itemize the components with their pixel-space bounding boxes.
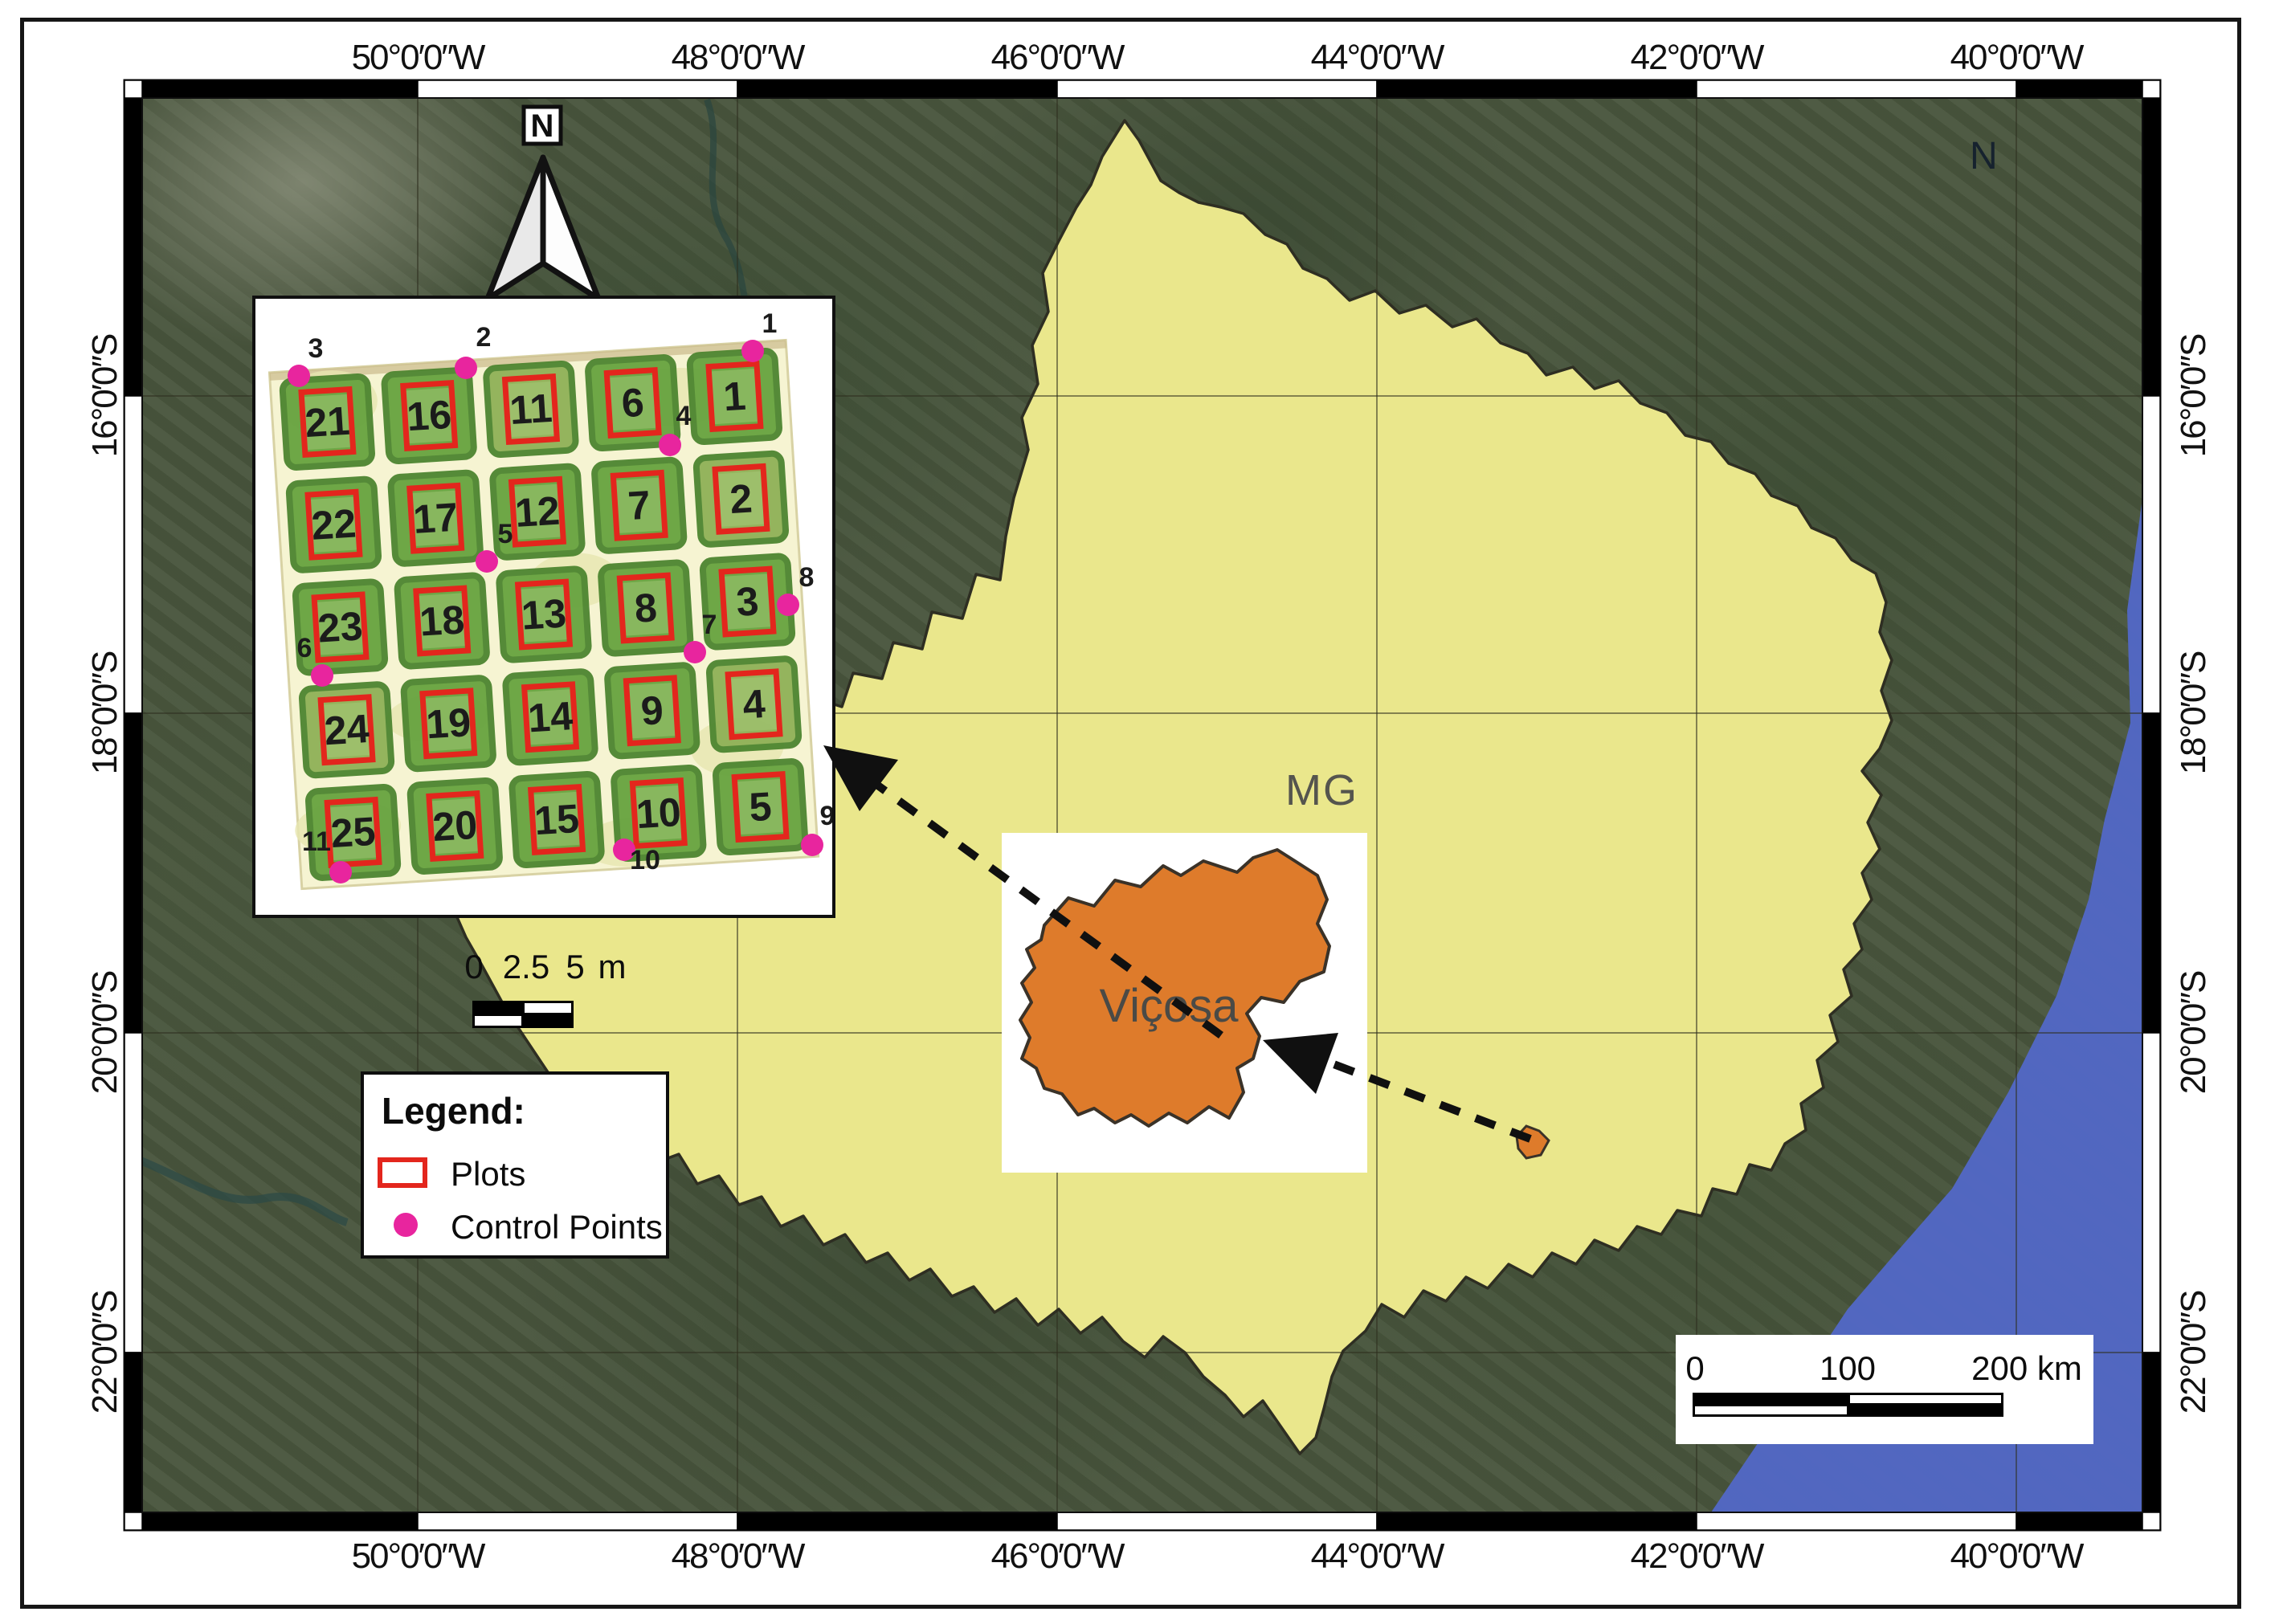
field-soil-line xyxy=(269,340,786,380)
plot-vegetation xyxy=(301,683,392,775)
plot-cell: 15 xyxy=(512,773,602,865)
plot-cell: 12 xyxy=(492,466,583,557)
control-point-dot xyxy=(329,861,352,883)
plot-outline-rect xyxy=(301,390,353,455)
plot-outline-rect xyxy=(512,479,564,545)
mosaic-blotch xyxy=(617,365,733,430)
plot-number: 2 xyxy=(729,475,754,522)
control-point-number: 7 xyxy=(702,610,717,640)
plot-number: 3 xyxy=(735,578,760,625)
vicosa-municipality-polygon xyxy=(1020,850,1329,1126)
plot-number: 18 xyxy=(419,597,466,644)
plot-vegetation xyxy=(505,671,596,763)
plot-cell: 6 xyxy=(587,357,678,448)
plot-vegetation-center xyxy=(300,394,353,451)
plot-number: 8 xyxy=(633,585,658,631)
plot-number: 23 xyxy=(317,603,364,651)
plot-vegetation xyxy=(600,562,691,654)
plot-cell: 16 xyxy=(384,369,475,461)
graticule-label-right: 20°0′0″S xyxy=(2174,972,2214,1095)
plot-number: 1 xyxy=(722,373,747,420)
inset-scalebar-tick-0: 0 xyxy=(464,948,483,986)
control-point: 8 xyxy=(777,562,814,616)
vicosa-inset-box: Viçosa xyxy=(1002,833,1367,1173)
plot-outline-rect xyxy=(308,492,360,557)
plot-cell: 17 xyxy=(390,472,481,564)
control-point-dot xyxy=(777,594,799,616)
plot-outline-rect xyxy=(721,569,774,635)
plot-outline-rect xyxy=(429,794,481,859)
plot-cell: 19 xyxy=(403,678,494,769)
graticule-label-right: 16°0′0″S xyxy=(2174,335,2214,458)
legend-item-plots: Plots xyxy=(451,1155,525,1194)
plot-number: 12 xyxy=(513,488,561,536)
plot-vegetation-center xyxy=(511,484,564,540)
map-figure: MG N N 211611612217127223181383241914942… xyxy=(0,0,2279,1624)
plot-vegetation-center xyxy=(734,779,787,835)
inset-scalebar-tick-2-5: 2.5 xyxy=(503,948,549,986)
graticule-label-left: 18°0′0″S xyxy=(85,652,125,775)
main-scalebar-tick-0: 0 xyxy=(1685,1349,1704,1388)
control-point: 11 xyxy=(302,826,352,883)
control-point-number: 2 xyxy=(476,322,492,353)
graticule-label-left: 16°0′0″S xyxy=(85,335,125,458)
plot-vegetation-center xyxy=(321,702,374,758)
plot-cell: 3 xyxy=(702,556,793,647)
plot-vegetation xyxy=(282,376,373,467)
plot-outline-rect xyxy=(613,472,665,538)
plot-number: 21 xyxy=(304,398,351,446)
plot-vegetation-center xyxy=(728,676,781,732)
plot-vegetation xyxy=(499,569,590,660)
plot-vegetation-center xyxy=(307,496,360,553)
plot-vegetation xyxy=(689,350,780,442)
control-point: 3 xyxy=(288,333,323,387)
plot-cell: 9 xyxy=(607,665,698,757)
plot-number: 22 xyxy=(310,501,357,549)
mosaic-blotch xyxy=(527,550,620,610)
plot-cell: 21 xyxy=(282,376,373,467)
graticule-label-bottom: 42°0′0″W xyxy=(1631,1536,1763,1577)
plot-outline-rect xyxy=(728,671,780,737)
plot-vegetation xyxy=(486,363,577,455)
plot-vegetation xyxy=(288,479,379,570)
plot-vegetation xyxy=(709,659,799,750)
plot-vegetation xyxy=(702,556,793,647)
plot-number: 10 xyxy=(635,790,682,837)
control-point-number: 5 xyxy=(498,519,513,549)
plot-vegetation-center xyxy=(517,586,570,643)
plot-cell: 7 xyxy=(594,459,684,551)
plot-cell: 23 xyxy=(295,581,386,673)
control-point: 9 xyxy=(801,801,832,856)
plot-cell: 2 xyxy=(696,453,786,545)
graticule-label-top: 50°0′0″W xyxy=(352,38,484,78)
graticule-label-bottom: 40°0′0″W xyxy=(1950,1536,2083,1577)
plot-cell: 1 xyxy=(689,350,780,442)
plot-cell: 24 xyxy=(301,683,392,775)
plot-number: 6 xyxy=(620,380,645,426)
graticule-label-bottom: 50°0′0″W xyxy=(352,1536,484,1577)
mosaic-blotch xyxy=(280,368,380,438)
plot-vegetation-center xyxy=(524,689,577,745)
plot-vegetation-center xyxy=(721,573,774,630)
plot-vegetation xyxy=(308,786,398,878)
plot-vegetation-center xyxy=(613,477,666,533)
plot-vegetation xyxy=(492,466,583,557)
control-point: 2 xyxy=(455,322,491,379)
inset-scalebar-outline xyxy=(472,1001,574,1028)
control-point: 5 xyxy=(476,519,513,573)
plot-outline-rect xyxy=(525,684,577,750)
plot-number: 25 xyxy=(329,809,377,856)
control-point-number: 10 xyxy=(630,845,660,875)
plot-outline-rect xyxy=(715,466,767,532)
graticule-label-right: 18°0′0″S xyxy=(2174,652,2214,775)
control-point-number: 8 xyxy=(799,562,815,593)
plot-cell: 5 xyxy=(715,761,806,852)
control-point-dot xyxy=(455,357,477,379)
plot-cell: 8 xyxy=(600,562,691,654)
main-scalebar: 0 100 200 km xyxy=(1676,1335,2093,1444)
plot-outline-rect xyxy=(709,364,761,430)
plot-outline-rect xyxy=(626,678,678,744)
graticule-label-bottom: 48°0′0″W xyxy=(672,1536,804,1577)
control-point-number: 4 xyxy=(676,401,692,431)
control-point-dot xyxy=(659,434,681,456)
orthomosaic-field: 2116116122171272231813832419149425201510… xyxy=(266,340,818,888)
control-point-swatch-icon xyxy=(394,1213,418,1237)
plot-number: 4 xyxy=(741,681,766,728)
plot-cell: 22 xyxy=(288,479,379,570)
plot-cell: 20 xyxy=(410,780,500,871)
plot-outline-rect xyxy=(518,581,570,647)
plot-vegetation-center xyxy=(409,490,462,546)
control-point-dot xyxy=(288,365,310,387)
plot-vegetation-center xyxy=(530,792,583,848)
plot-number: 15 xyxy=(533,796,581,843)
plot-number: 17 xyxy=(412,495,459,542)
plot-outline-rect xyxy=(403,383,455,449)
plot-outline-rect xyxy=(423,691,475,757)
orthomosaic-background xyxy=(269,340,818,888)
plot-number: 20 xyxy=(431,802,479,850)
plot-number: 7 xyxy=(627,482,651,528)
control-point-number: 9 xyxy=(820,801,832,831)
control-point-dot xyxy=(476,550,498,573)
plot-outline-rect xyxy=(410,485,462,551)
control-point: 7 xyxy=(684,610,717,663)
plot-vegetation-center xyxy=(504,382,557,438)
plot-vegetation-center xyxy=(619,580,672,636)
mosaic-blotch xyxy=(581,815,680,869)
plot-vegetation xyxy=(410,780,500,871)
plot-number: 14 xyxy=(527,693,574,741)
plot-vegetation-center xyxy=(415,593,468,649)
graticule-label-top: 40°0′0″W xyxy=(1950,38,2083,78)
plot-outline-rect xyxy=(531,787,583,853)
plot-vegetation xyxy=(614,767,705,859)
graticule-label-top: 44°0′0″W xyxy=(1311,38,1444,78)
vicosa-label: Viçosa xyxy=(1099,980,1239,1032)
graticule-label-bottom: 44°0′0″W xyxy=(1311,1536,1444,1577)
plot-cell: 4 xyxy=(709,659,799,750)
control-point-dot xyxy=(684,641,706,663)
plot-vegetation-center xyxy=(327,805,380,861)
plot-vegetation xyxy=(696,453,786,545)
mosaic-blotch xyxy=(689,716,786,779)
mosaic-blotch xyxy=(385,691,491,745)
plot-cell: 13 xyxy=(499,569,590,660)
plot-vegetation-center xyxy=(402,388,455,444)
plot-vegetation-center xyxy=(313,599,366,655)
plot-outline-rect xyxy=(327,800,379,866)
control-point-number: 11 xyxy=(302,826,331,857)
plot-vegetation xyxy=(384,369,475,461)
graticule-label-bottom: 46°0′0″W xyxy=(991,1536,1124,1577)
plot-vegetation xyxy=(512,773,602,865)
graticule-label-right: 22°0′0″S xyxy=(2174,1291,2214,1414)
plot-number: 9 xyxy=(639,688,664,734)
plot-number: 5 xyxy=(748,784,773,830)
main-scalebar-outline xyxy=(1693,1393,2003,1417)
control-point: 1 xyxy=(741,308,777,362)
plot-cell: 25 xyxy=(308,786,398,878)
plot-swatch-icon xyxy=(378,1157,427,1188)
plots-inset-canvas: 2116116122171272231813832419149425201510… xyxy=(255,299,832,915)
graticule-label-left: 20°0′0″S xyxy=(85,972,125,1095)
plot-vegetation-center xyxy=(632,785,685,842)
plot-outline-rect xyxy=(632,781,684,847)
plot-outline-rect xyxy=(734,774,786,840)
plot-vegetation xyxy=(403,678,494,769)
plot-outline-rect xyxy=(416,588,468,654)
control-point-dot xyxy=(801,834,823,856)
plot-vegetation-center xyxy=(714,471,767,527)
graticule-label-top: 48°0′0″W xyxy=(672,38,804,78)
plot-cell: 10 xyxy=(614,767,705,859)
control-point-number: 6 xyxy=(297,633,312,663)
control-point: 4 xyxy=(659,401,692,456)
legend-item-control-points: Control Points xyxy=(451,1208,663,1247)
plot-vegetation-center xyxy=(626,683,679,739)
plot-outline-rect xyxy=(619,575,672,641)
plot-vegetation xyxy=(390,472,481,564)
control-point-dot xyxy=(613,839,635,861)
inset-scalebar-unit: m xyxy=(598,948,627,986)
control-point-number: 1 xyxy=(762,308,778,339)
plot-number: 24 xyxy=(323,706,370,753)
legend: Legend: Plots Control Points xyxy=(361,1071,669,1259)
plot-outline-rect xyxy=(314,594,366,660)
control-point-number: 3 xyxy=(308,333,324,364)
plot-vegetation xyxy=(715,761,806,852)
vicosa-inset-canvas: Viçosa xyxy=(1002,833,1367,1173)
plot-vegetation-center xyxy=(422,696,475,752)
plot-cell: 11 xyxy=(486,363,577,455)
plot-cell: 14 xyxy=(505,671,596,763)
plot-vegetation-center xyxy=(607,375,660,431)
plot-number: 13 xyxy=(520,590,567,638)
control-point-dot xyxy=(741,340,764,362)
main-scalebar-tick-100: 100 xyxy=(1820,1349,1876,1388)
control-point-dot xyxy=(311,664,333,687)
graticule-label-top: 42°0′0″W xyxy=(1631,38,1763,78)
plot-number: 16 xyxy=(406,392,453,439)
plot-vegetation-center xyxy=(428,798,481,855)
graticule-label-left: 22°0′0″S xyxy=(85,1291,125,1414)
plot-vegetation-center xyxy=(708,369,761,425)
plot-number: 19 xyxy=(425,700,472,747)
plot-vegetation xyxy=(397,575,488,667)
plots-inset-box: 2116116122171272231813832419149425201510… xyxy=(252,296,835,918)
inset-scalebar-tick-5: 5 xyxy=(566,948,584,986)
graticule-label-top: 46°0′0″W xyxy=(991,38,1124,78)
control-point: 6 xyxy=(297,633,333,687)
plot-vegetation xyxy=(594,459,684,551)
legend-title: Legend: xyxy=(382,1089,525,1132)
mosaic-blotch xyxy=(293,798,402,859)
plot-vegetation xyxy=(607,665,698,757)
main-scalebar-tick-200: 200 km xyxy=(1971,1349,2082,1388)
plot-vegetation xyxy=(587,357,678,448)
plot-outline-rect xyxy=(505,377,557,443)
plot-outline-rect xyxy=(321,697,373,763)
control-point: 10 xyxy=(613,839,660,875)
plot-vegetation xyxy=(295,581,386,673)
plot-cell: 18 xyxy=(397,575,488,667)
plot-number: 11 xyxy=(508,386,553,433)
plot-outline-rect xyxy=(607,370,659,436)
